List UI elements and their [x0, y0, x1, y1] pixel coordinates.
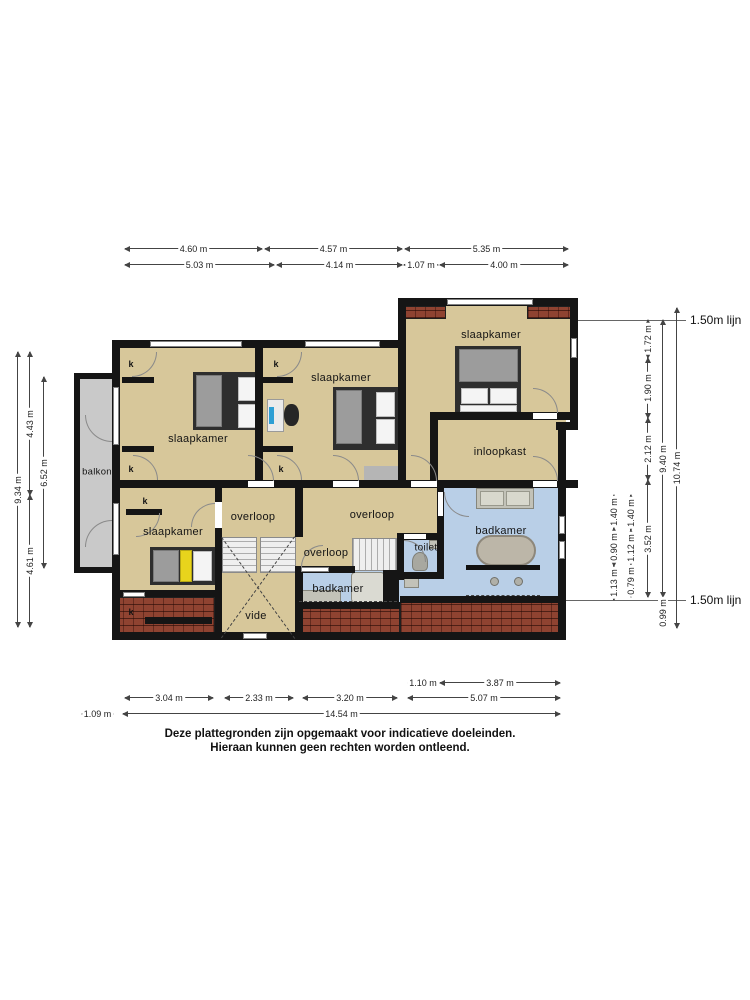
roof-brick-bottomright: [400, 602, 562, 634]
dim-arrowhead: [439, 262, 445, 268]
dim-arrowhead: [645, 592, 651, 598]
door-gap-corridor: [411, 481, 437, 487]
dim-arrowhead: [439, 680, 445, 686]
roof-brick-topleft: [404, 306, 446, 319]
dimension-line: 5.03 m: [125, 264, 274, 265]
dim-label: 0.79 m: [626, 565, 636, 597]
dim-arrowhead: [15, 622, 21, 628]
wall-k1-room1: [122, 377, 154, 383]
dim-arrowhead: [208, 695, 214, 701]
dim-arrowhead: [645, 357, 651, 363]
dim-label: 14.54 m: [323, 709, 360, 719]
closet-label-k: k: [128, 607, 133, 617]
dimension-line: 4.43 m: [29, 352, 30, 495]
dimension-line: 2.12 m: [647, 418, 648, 480]
wall-toilet-bottom: [397, 572, 444, 579]
dim-label: 4.60 m: [178, 244, 210, 254]
door-gap-inloopkast-top: [533, 413, 557, 419]
room-label-toilet: toilet: [415, 543, 438, 554]
dimension-line: 0.79 m: [630, 565, 631, 597]
door-gap-room1: [248, 481, 274, 487]
dimension-line: 10.74 m: [676, 308, 677, 628]
dimension-line: 5.35 m: [405, 248, 568, 249]
dim-label: 5.35 m: [471, 244, 503, 254]
bed-pillow-room2: [376, 419, 395, 444]
wall-brick-divider: [145, 617, 212, 624]
dim-arrowhead: [674, 623, 680, 629]
window-badkamer-2: [559, 541, 565, 559]
room-label-inloopkast: inloopkast: [474, 446, 527, 458]
dim-arrowhead: [392, 695, 398, 701]
footer-disclaimer: Deze plattegronden zijn opgemaakt voor i…: [20, 727, 660, 755]
wall-balkon-left: [74, 373, 80, 573]
washbasin-bowl: [480, 491, 504, 506]
dim-arrowhead: [257, 246, 263, 252]
dim-arrowhead: [555, 680, 561, 686]
dimension-line: 0.99 m: [662, 597, 663, 628]
window-vide-bottom: [243, 633, 267, 639]
shower-dashed-large: [466, 595, 540, 596]
dim-label: 3.52 m: [643, 523, 653, 555]
dimension-line: 4.61 m: [29, 495, 30, 627]
dimension-line: 0.90 m: [613, 528, 614, 566]
room-label-badkamer-large: badkamer: [475, 525, 526, 537]
dimension-line: 4.14 m: [277, 264, 402, 265]
dimension-line: 14.54 m: [123, 713, 560, 714]
dim-label: 2.12 m: [643, 433, 653, 465]
dim-label: 3.04 m: [153, 693, 185, 703]
dim-arrowhead: [645, 479, 651, 485]
dimension-line: 9.40 m: [662, 320, 663, 597]
dimension-line: 1.09 m: [82, 713, 113, 714]
door-gap-toilet: [404, 534, 426, 539]
room-label-slaapkamer-topmiddle: slaapkamer: [311, 372, 371, 384]
room-label-overloop-1: overloop: [231, 511, 276, 523]
dimension-line: 3.87 m: [440, 682, 560, 683]
wall-badkamer-large-bottom: [400, 596, 566, 603]
floorplan-canvas: 1.50m lijn 1.50m lijn Deze plattegronden…: [0, 0, 750, 1000]
bathtub: [476, 535, 536, 566]
dim-arrowhead: [555, 711, 561, 717]
dimension-line: 3.04 m: [125, 697, 213, 698]
wall-block-left: [398, 298, 406, 488]
window-block-top: [447, 299, 533, 305]
wall-k1-room2: [263, 377, 293, 383]
bed-mattress-room4: [153, 550, 179, 582]
window-badkamer-1: [559, 516, 565, 534]
room-label-slaapkamer-topright: slaapkamer: [461, 329, 521, 341]
window-overloop3: [301, 567, 329, 572]
room-label-overloop-2: overloop: [350, 509, 395, 521]
dim-label: 10.74 m: [672, 450, 682, 487]
dim-label: 3.20 m: [334, 693, 366, 703]
dim-arrowhead: [124, 695, 130, 701]
wall-block-right: [570, 298, 578, 430]
bed-blanket-room3: [459, 349, 518, 382]
bed-foot-room3: [460, 405, 517, 412]
desk-chair: [284, 404, 299, 426]
dim-label: 1.07 m: [405, 260, 437, 270]
dimension-line: 1.90 m: [647, 358, 648, 418]
dim-label: 6.52 m: [39, 457, 49, 489]
dim-label: 1.40 m: [626, 497, 636, 529]
dim-arrowhead: [288, 695, 294, 701]
dim-arrowhead: [302, 695, 308, 701]
desk-monitor: [269, 407, 274, 424]
dimension-line: 6.52 m: [43, 377, 44, 568]
window-block-right: [571, 338, 577, 358]
bed-mattress-room2: [336, 390, 362, 444]
dim-arrowhead: [41, 563, 47, 569]
bed-pillow-room3: [461, 388, 488, 404]
dim-label: 1.13 m: [609, 567, 619, 599]
dim-label: 1.40 m: [609, 496, 619, 528]
rug-room2: [364, 466, 400, 481]
dim-arrowhead: [674, 307, 680, 313]
dim-arrowhead: [645, 417, 651, 423]
door-gap-badkamer: [438, 492, 443, 516]
window-top-1: [150, 341, 242, 347]
dim-arrowhead: [27, 351, 33, 357]
roof-brick-topright: [527, 306, 571, 319]
room-label-slaapkamer-bottomleft: slaapkamer: [143, 526, 203, 538]
dim-label: 1.72 m: [643, 323, 653, 355]
dim-arrowhead: [264, 246, 270, 252]
closet-label-k: k: [128, 464, 133, 474]
window-balkon-door-top: [113, 387, 119, 445]
roof-brick-bottommiddle: [299, 608, 400, 634]
lijn-150-top: [578, 320, 686, 321]
wall-k2-room2: [263, 446, 293, 452]
wall-bottom-exterior: [112, 632, 566, 640]
door-gap-inloopkast-bottom: [533, 481, 557, 487]
washbasin-bowl: [506, 491, 530, 506]
dim-label: 3.87 m: [484, 678, 516, 688]
shower-head: [514, 577, 523, 586]
dim-label: 1.90 m: [643, 372, 653, 404]
shower-dashed-small: [299, 601, 397, 602]
dim-label: 5.07 m: [468, 693, 500, 703]
dim-label: 0.90 m: [609, 531, 619, 563]
dim-arrowhead: [27, 494, 33, 500]
dim-arrowhead: [27, 622, 33, 628]
stairs-left-flight: [222, 537, 257, 573]
dimension-line: 9.34 m: [17, 352, 18, 627]
dimension-line: 1.40 m: [613, 495, 614, 528]
shower-head: [490, 577, 499, 586]
wall-toilet-right: [437, 537, 444, 572]
wall-vide-right-upper: [295, 488, 303, 537]
dim-label: 0.99 m: [658, 597, 668, 629]
stairs-middle: [352, 538, 397, 571]
dim-arrowhead: [660, 319, 666, 325]
dimension-line: 1.12 m: [630, 530, 631, 565]
line-150m-label-top: 1.50m lijn: [690, 313, 741, 327]
room-label-overloop-3: overloop: [304, 547, 349, 559]
roof-brick-bottomleft: [112, 597, 215, 634]
dim-label: 1.12 m: [626, 532, 636, 564]
bed-mattress-room1: [196, 375, 222, 427]
dim-label: 5.03 m: [184, 260, 216, 270]
dimension-line: 5.07 m: [408, 697, 560, 698]
dim-arrowhead: [563, 262, 569, 268]
door-gap-room4: [215, 502, 222, 528]
dimension-line: 1.07 m: [404, 264, 438, 265]
dim-arrowhead: [269, 262, 275, 268]
wall-k2-room1: [122, 446, 154, 452]
window-top-2: [305, 341, 380, 347]
dim-label: 1.09 m: [82, 709, 114, 719]
dimension-line: 4.57 m: [265, 248, 402, 249]
door-gap-room2: [333, 481, 359, 487]
window-room4-bottom: [123, 592, 145, 597]
closet-label-k: k: [128, 359, 133, 369]
dim-label: 9.40 m: [658, 443, 668, 475]
dim-label: 9.34 m: [13, 474, 23, 506]
line-150m-label-bottom: 1.50m lijn: [690, 593, 741, 607]
dim-label: 2.33 m: [243, 693, 275, 703]
dim-arrowhead: [407, 695, 413, 701]
footer-disclaimer-line2: Hieraan kunnen geen rechten worden ontle…: [20, 741, 660, 755]
dim-arrowhead: [122, 711, 128, 717]
dimension-line: 1.13 m: [613, 566, 614, 600]
dim-arrowhead: [124, 262, 130, 268]
dimension-line: 3.20 m: [303, 697, 397, 698]
room-label-slaapkamer-topleft: slaapkamer: [168, 433, 228, 445]
dimension-line: 1.10 m: [408, 682, 438, 683]
dim-label: 4.43 m: [25, 408, 35, 440]
bed-pillow-room2: [376, 392, 395, 417]
bed-yellow-room4: [180, 550, 192, 582]
dim-label: 4.14 m: [324, 260, 356, 270]
dim-arrowhead: [15, 351, 21, 357]
shower-screen-bar: [466, 565, 540, 570]
dimension-line: 2.33 m: [225, 697, 293, 698]
dim-arrowhead: [563, 246, 569, 252]
room-label-balkon: balkon: [82, 467, 112, 478]
dim-arrowhead: [276, 262, 282, 268]
room-label-badkamer-small: badkamer: [312, 583, 363, 595]
dimension-line: 1.40 m: [630, 495, 631, 530]
window-balkon-door-bottom: [113, 503, 119, 555]
dimension-line: 1.72 m: [647, 320, 648, 358]
bed-pillow-room4: [193, 551, 212, 581]
dimension-line: 3.52 m: [647, 480, 648, 597]
dim-arrowhead: [224, 695, 230, 701]
dim-label: 4.61 m: [25, 545, 35, 577]
room-label-vide: vide: [245, 610, 266, 622]
wall-balkon-bottom: [74, 567, 112, 573]
footer-disclaimer-line1: Deze plattegronden zijn opgemaakt voor i…: [20, 727, 660, 741]
lijn-150-bottom: [566, 600, 686, 601]
dimension-line: 4.60 m: [125, 248, 262, 249]
dim-arrowhead: [397, 246, 403, 252]
dim-arrowhead: [41, 376, 47, 382]
closet-label-k: k: [142, 496, 147, 506]
dim-label: 1.10 m: [407, 678, 439, 688]
closet-label-k: k: [278, 464, 283, 474]
dim-arrowhead: [124, 246, 130, 252]
closet-label-k: k: [273, 359, 278, 369]
dimension-line: 4.00 m: [440, 264, 568, 265]
dim-label: 4.00 m: [488, 260, 520, 270]
dim-arrowhead: [404, 246, 410, 252]
bed-pillow-room3: [490, 388, 517, 404]
wall-balkon-top: [74, 373, 112, 379]
dim-arrowhead: [555, 695, 561, 701]
dim-label: 4.57 m: [318, 244, 350, 254]
